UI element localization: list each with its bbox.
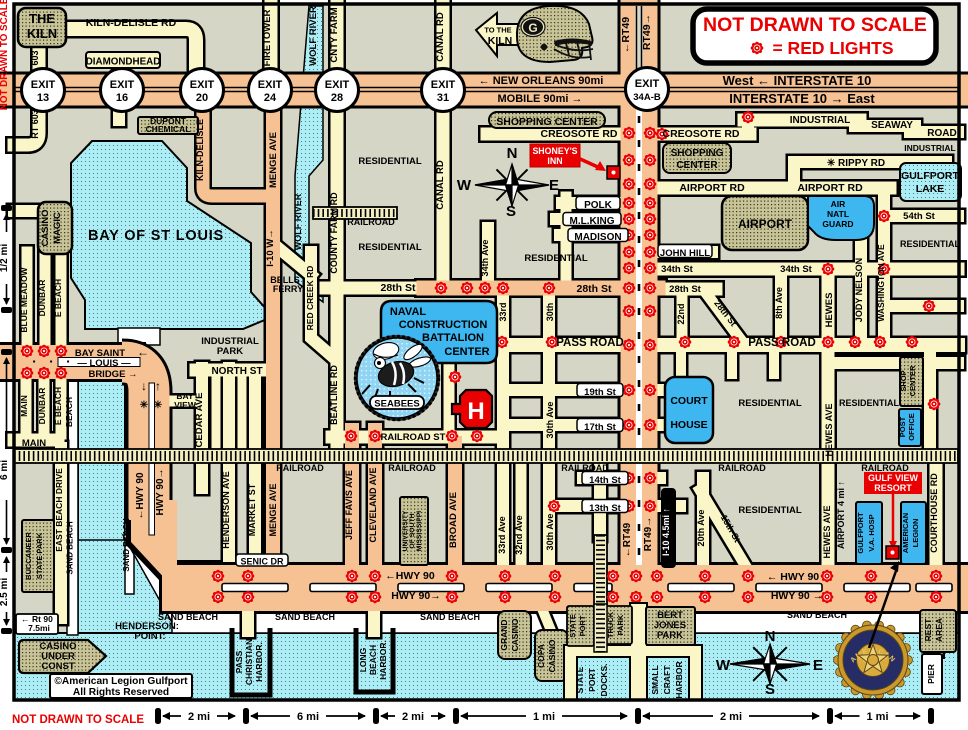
svg-text:MOBILE 90mi →: MOBILE 90mi → xyxy=(498,93,583,105)
svg-text:CHEMICAL: CHEMICAL xyxy=(146,124,191,134)
svg-text:HWY 90 →: HWY 90 → xyxy=(771,590,823,602)
svg-text:AIRPORT RD: AIRPORT RD xyxy=(679,182,745,194)
svg-text:INDUSTRIAL: INDUSTRIAL xyxy=(904,143,955,153)
svg-text:CREOSOTE RD: CREOSOTE RD xyxy=(662,128,739,140)
svg-text:AIR: AIR xyxy=(831,199,846,209)
svg-text:LEGION: LEGION xyxy=(911,519,920,548)
svg-text:EAST BEACH DRIVE: EAST BEACH DRIVE xyxy=(54,468,64,552)
svg-text:SAND BEACH: SAND BEACH xyxy=(275,612,335,622)
svg-text:31: 31 xyxy=(437,92,449,104)
svg-text:AIRPORT: AIRPORT xyxy=(738,217,793,231)
svg-text:2 mi: 2 mi xyxy=(720,711,742,723)
svg-text:POLK: POLK xyxy=(584,200,613,211)
svg-text:MAIN: MAIN xyxy=(22,438,46,449)
svg-text:DUNBAR: DUNBAR xyxy=(37,388,47,425)
svg-text:PIER: PIER xyxy=(926,664,936,684)
svg-text:WASHINGTON AVE: WASHINGTON AVE xyxy=(876,244,886,322)
svg-text:CREOSOTE RD: CREOSOTE RD xyxy=(540,128,617,140)
svg-text:©American Legion Gulfport: ©American Legion Gulfport xyxy=(54,676,188,687)
svg-text:SHOP: SHOP xyxy=(899,370,908,391)
svg-text:34th Ave: 34th Ave xyxy=(480,240,490,277)
svg-text:CASINO: CASINO xyxy=(510,618,520,651)
svg-text:32nd Ave: 32nd Ave xyxy=(514,515,524,554)
svg-text:←: ← xyxy=(137,345,149,359)
svg-text:NOT DRAWN TO SCALE: NOT DRAWN TO SCALE xyxy=(0,0,10,110)
svg-text:7.5mi: 7.5mi xyxy=(28,623,50,633)
svg-text:6 mi: 6 mi xyxy=(0,460,10,480)
svg-text:MAIN: MAIN xyxy=(19,395,29,417)
svg-text:RESIDENTIAL: RESIDENTIAL xyxy=(738,398,802,409)
svg-text:SENIC DR: SENIC DR xyxy=(240,557,284,567)
svg-text:MISSISSIPPI: MISSISSIPPI xyxy=(416,511,423,552)
svg-text:28th St: 28th St xyxy=(380,282,416,294)
svg-text:RAILROAD: RAILROAD xyxy=(347,217,395,227)
svg-text:E BEACH: E BEACH xyxy=(53,279,63,317)
svg-text:RT 603: RT 603 xyxy=(30,109,40,139)
svg-text:RAILROAD: RAILROAD xyxy=(718,463,766,473)
svg-text:34A-B: 34A-B xyxy=(633,92,661,103)
svg-text:▪: ▪ xyxy=(50,357,53,366)
svg-text:2 mi: 2 mi xyxy=(402,711,424,723)
svg-text:SEABEES: SEABEES xyxy=(374,399,419,410)
svg-text:← NEW ORLEANS 90mi: ← NEW ORLEANS 90mi xyxy=(479,75,604,87)
svg-text:PARK: PARK xyxy=(657,630,683,641)
svg-text:BAY OF ST LOUIS: BAY OF ST LOUIS xyxy=(88,228,224,244)
svg-text:30th Ave: 30th Ave xyxy=(545,402,555,439)
svg-text:SHOPPING CENTER: SHOPPING CENTER xyxy=(496,116,598,128)
svg-text:HENDERSON AVE: HENDERSON AVE xyxy=(221,471,231,549)
svg-text:EXIT: EXIT xyxy=(325,79,350,91)
svg-text:24: 24 xyxy=(264,92,277,104)
svg-text:SAND BEACH: SAND BEACH xyxy=(787,610,847,620)
svg-text:INTERSTATE 10 → East: INTERSTATE 10 → East xyxy=(729,91,875,106)
svg-text:HARBOR: HARBOR xyxy=(674,661,684,698)
svg-text:PORT: PORT xyxy=(578,615,587,636)
svg-text:603: 603 xyxy=(30,50,40,65)
svg-text:SMALL: SMALL xyxy=(650,665,660,694)
svg-text:CANAL RD: CANAL RD xyxy=(435,160,446,210)
svg-text:BEATLINE RD: BEATLINE RD xyxy=(329,365,339,425)
svg-text:1/2 mi: 1/2 mi xyxy=(0,244,10,273)
svg-text:G: G xyxy=(528,21,537,35)
svg-text:CLEVELAND AVE: CLEVELAND AVE xyxy=(368,467,378,542)
svg-text:16: 16 xyxy=(116,92,128,104)
svg-text:↑: ↑ xyxy=(155,379,161,393)
svg-text:RESORT: RESORT xyxy=(874,483,912,493)
svg-text:34th St: 34th St xyxy=(780,264,813,275)
svg-text:28: 28 xyxy=(331,92,343,104)
svg-text:RAILROAD: RAILROAD xyxy=(561,463,609,473)
svg-text:S: S xyxy=(765,681,775,698)
svg-text:EXIT: EXIT xyxy=(190,79,215,91)
svg-text:FERRY: FERRY xyxy=(273,284,303,294)
svg-text:FIRETOWER: FIRETOWER xyxy=(262,9,273,66)
svg-text:HEWES AVE: HEWES AVE xyxy=(824,403,834,456)
svg-text:POST: POST xyxy=(898,416,907,437)
svg-text:NORTH ST: NORTH ST xyxy=(211,366,262,377)
svg-text:MENGE AVE: MENGE AVE xyxy=(268,483,278,536)
svg-text:13: 13 xyxy=(37,92,49,104)
svg-text:RAILROAD ST: RAILROAD ST xyxy=(381,432,446,443)
svg-text:BEACH: BEACH xyxy=(368,645,378,675)
svg-text:KILN: KILN xyxy=(488,35,513,47)
svg-text:DUNBAR: DUNBAR xyxy=(37,280,47,317)
svg-text:GULFPORT: GULFPORT xyxy=(856,512,865,554)
svg-text:13th St: 13th St xyxy=(589,503,622,514)
svg-text:SAND BEACH: SAND BEACH xyxy=(122,518,131,572)
svg-text:BEACH: BEACH xyxy=(64,397,74,427)
svg-text:COPA: COPA xyxy=(536,644,546,668)
svg-text:COUNTY FARM RD: COUNTY FARM RD xyxy=(329,192,339,274)
svg-text:HEWES: HEWES xyxy=(824,293,835,328)
svg-text:STATE: STATE xyxy=(568,614,577,637)
svg-text:RT49→: RT49→ xyxy=(641,14,653,50)
svg-text:↓: ↓ xyxy=(141,379,147,393)
svg-text:RESIDENTIAL: RESIDENTIAL xyxy=(358,242,422,253)
svg-text:HARBOR.: HARBOR. xyxy=(254,642,264,682)
svg-text:1 mi: 1 mi xyxy=(866,711,888,723)
svg-text:SAND BEACH: SAND BEACH xyxy=(420,612,480,622)
svg-text:M.L.KING: M.L.KING xyxy=(570,216,615,227)
svg-text:LONG: LONG xyxy=(358,647,368,672)
svg-text:19th St: 19th St xyxy=(584,387,617,398)
svg-text:RESIDENTIAL: RESIDENTIAL xyxy=(358,156,422,167)
svg-text:E: E xyxy=(549,177,559,194)
svg-text:8th Ave: 8th Ave xyxy=(774,287,784,319)
svg-text:MARKET ST: MARKET ST xyxy=(247,483,257,536)
svg-text:WOLF RIVER: WOLF RIVER xyxy=(308,6,319,66)
svg-text:E: E xyxy=(813,657,823,674)
svg-text:NOT DRAWN TO SCALE: NOT DRAWN TO SCALE xyxy=(12,714,144,726)
svg-text:←HWY 90: ←HWY 90 xyxy=(385,570,435,582)
svg-text:PASS ROAD: PASS ROAD xyxy=(748,337,816,349)
svg-text:KILN: KILN xyxy=(27,26,57,41)
svg-text:✳: ✳ xyxy=(154,400,163,411)
svg-text:— LOUIS —: — LOUIS — xyxy=(77,358,131,369)
svg-text:= RED LIGHTS: = RED LIGHTS xyxy=(772,38,893,58)
svg-text:6 mi: 6 mi xyxy=(297,711,319,723)
svg-text:1 mi: 1 mi xyxy=(533,711,555,723)
svg-text:←HWY 90: ←HWY 90 xyxy=(135,472,146,519)
svg-text:RAILROAD: RAILROAD xyxy=(388,463,436,473)
svg-text:STATE PARK: STATE PARK xyxy=(35,532,44,579)
svg-text:GULF VIEW: GULF VIEW xyxy=(868,473,919,483)
svg-text:RESIDENTIAL: RESIDENTIAL xyxy=(839,398,900,408)
svg-text:▪: ▪ xyxy=(33,357,36,366)
svg-text:TO THE: TO THE xyxy=(484,26,511,35)
svg-text:COURT: COURT xyxy=(670,395,708,407)
svg-text:CANAL RD: CANAL RD xyxy=(435,12,446,62)
svg-text:20th Ave: 20th Ave xyxy=(696,510,706,547)
svg-text:RESIDENTIAL: RESIDENTIAL xyxy=(900,239,961,249)
svg-text:UNIVERSITY: UNIVERSITY xyxy=(402,510,409,551)
svg-text:HARBOR.: HARBOR. xyxy=(378,640,388,680)
svg-text:CASINO: CASINO xyxy=(40,210,51,247)
svg-text:BLUE MEADOW: BLUE MEADOW xyxy=(19,266,29,332)
svg-text:PARK: PARK xyxy=(217,346,243,357)
svg-text:I-10 4.5mi ↑: I-10 4.5mi ↑ xyxy=(661,508,671,556)
svg-text:I-10 W→: I-10 W→ xyxy=(265,229,276,266)
svg-text:INDUSTRIAL: INDUSTRIAL xyxy=(790,115,851,126)
svg-text:17th St: 17th St xyxy=(584,422,617,433)
svg-text:STATE: STATE xyxy=(575,666,585,693)
svg-text:2.5 mi: 2.5 mi xyxy=(0,578,10,607)
svg-text:N: N xyxy=(507,145,518,162)
svg-text:RT49→: RT49→ xyxy=(643,517,654,551)
svg-text:CNTY FARM: CNTY FARM xyxy=(329,7,340,62)
svg-text:GRAND: GRAND xyxy=(499,619,509,650)
svg-text:CONST: CONST xyxy=(41,661,74,672)
svg-text:All Rights Reserved: All Rights Reserved xyxy=(73,687,169,698)
svg-text:28th St: 28th St xyxy=(576,283,612,295)
svg-text:RESIDENTIAL: RESIDENTIAL xyxy=(738,505,802,516)
svg-text:SEAWAY: SEAWAY xyxy=(871,120,913,131)
svg-text:CENTER: CENTER xyxy=(444,346,489,358)
svg-text:REST: REST xyxy=(923,618,933,641)
svg-text:SHONEY'S: SHONEY'S xyxy=(532,146,577,156)
svg-text:EXIT: EXIT xyxy=(110,79,135,91)
svg-text:COURTHOUSE RD: COURTHOUSE RD xyxy=(929,473,939,553)
svg-text:✳: ✳ xyxy=(140,400,149,411)
svg-text:KILN-DELISLE: KILN-DELISLE xyxy=(195,119,205,181)
svg-text:V.A. HOSP: V.A. HOSP xyxy=(867,514,876,551)
svg-text:JOHN HILL: JOHN HILL xyxy=(660,248,710,259)
svg-text:CENTER: CENTER xyxy=(676,160,718,171)
svg-text:CHRISTIAN: CHRISTIAN xyxy=(244,639,254,685)
svg-text:THE: THE xyxy=(29,11,55,26)
svg-text:KILN-DELISLE RD: KILN-DELISLE RD xyxy=(86,17,177,29)
svg-text:GULFPORT: GULFPORT xyxy=(901,170,959,182)
svg-text:EXIT: EXIT xyxy=(635,78,660,90)
svg-text:CRAFT: CRAFT xyxy=(662,665,672,695)
svg-text:N: N xyxy=(765,628,776,645)
svg-text:14th St: 14th St xyxy=(589,475,622,486)
svg-text:VIEW: VIEW xyxy=(174,400,197,410)
svg-text:RAILROAD: RAILROAD xyxy=(276,463,324,473)
svg-text:EXIT: EXIT xyxy=(31,79,56,91)
svg-text:MENGE AVE: MENGE AVE xyxy=(268,132,279,188)
svg-text:WOLF RIVER: WOLF RIVER xyxy=(293,193,303,250)
svg-text:OFFICE: OFFICE xyxy=(907,413,916,441)
svg-text:AMERICAN: AMERICAN xyxy=(901,513,910,553)
svg-text:E BEACH: E BEACH xyxy=(53,387,63,425)
svg-text:34th St: 34th St xyxy=(661,264,694,275)
svg-text:←RT49: ←RT49 xyxy=(622,522,633,557)
svg-text:NATL: NATL xyxy=(827,209,849,219)
svg-text:JEFF FAVIS AVE: JEFF FAVIS AVE xyxy=(344,470,354,540)
svg-text:54th St: 54th St xyxy=(903,211,936,222)
svg-text:RED CREEK RD: RED CREEK RD xyxy=(305,266,315,331)
svg-text:33rd Ave: 33rd Ave xyxy=(497,516,507,553)
svg-text:▪: ▪ xyxy=(67,357,70,366)
svg-text:CENTER: CENTER xyxy=(908,365,917,396)
svg-text:CONSTRUCTION: CONSTRUCTION xyxy=(399,319,488,331)
svg-text:POINT:: POINT: xyxy=(134,631,165,642)
svg-text:20: 20 xyxy=(196,92,208,104)
svg-text:DIAMONDHEAD: DIAMONDHEAD xyxy=(86,57,161,68)
svg-text:GUARD: GUARD xyxy=(822,219,853,229)
svg-text:AREA: AREA xyxy=(934,618,944,642)
svg-text:RESIDENTIAL: RESIDENTIAL xyxy=(524,253,588,264)
svg-text:ROAD: ROAD xyxy=(927,128,956,139)
svg-text:CASINO: CASINO xyxy=(547,639,557,672)
svg-text:NAVAL: NAVAL xyxy=(390,306,427,318)
svg-text:AIRPORT 4 mi ↑: AIRPORT 4 mi ↑ xyxy=(836,481,846,549)
svg-text:LAKE: LAKE xyxy=(916,183,945,195)
svg-text:PASS: PASS xyxy=(234,650,244,673)
svg-text:HWY 90→: HWY 90→ xyxy=(155,468,166,515)
svg-text:JODY NELSON: JODY NELSON xyxy=(854,258,864,322)
svg-text:←RT49: ←RT49 xyxy=(620,17,632,53)
svg-text:SHOPPING: SHOPPING xyxy=(671,148,724,159)
svg-text:33rd: 33rd xyxy=(498,302,508,321)
svg-text:EXIT: EXIT xyxy=(431,79,456,91)
svg-text:BRIDGE →: BRIDGE → xyxy=(88,369,137,380)
svg-text:OF SOUTH: OF SOUTH xyxy=(409,513,416,548)
svg-text:HWY 90→: HWY 90→ xyxy=(391,590,440,602)
svg-text:EXIT: EXIT xyxy=(258,79,283,91)
svg-text:30th: 30th xyxy=(545,303,555,322)
svg-text:PASS ROAD: PASS ROAD xyxy=(556,337,624,349)
svg-text:BATTALION: BATTALION xyxy=(422,332,484,344)
svg-text:SAND BEACH: SAND BEACH xyxy=(66,521,75,575)
svg-text:2 mi: 2 mi xyxy=(188,711,210,723)
svg-text:PARK: PARK xyxy=(616,614,625,635)
svg-text:NOT DRAWN TO SCALE: NOT DRAWN TO SCALE xyxy=(703,14,927,36)
svg-text:BROAD AVE: BROAD AVE xyxy=(448,492,459,548)
svg-text:AIRPORT RD: AIRPORT RD xyxy=(797,182,863,194)
svg-text:HEWES AVE: HEWES AVE xyxy=(822,505,832,558)
svg-text:W: W xyxy=(716,657,731,674)
svg-text:22nd: 22nd xyxy=(676,303,686,324)
svg-text:✳ RIPPY RD: ✳ RIPPY RD xyxy=(827,158,885,169)
svg-text:28th St: 28th St xyxy=(669,284,702,295)
svg-text:INN: INN xyxy=(547,156,562,166)
svg-text:HOUSE: HOUSE xyxy=(670,419,707,431)
svg-text:West ← INTERSTATE 10: West ← INTERSTATE 10 xyxy=(723,73,872,88)
svg-text:← HWY 90: ← HWY 90 xyxy=(767,571,819,583)
svg-text:DOCKS.: DOCKS. xyxy=(599,663,609,696)
svg-text:W: W xyxy=(457,177,472,194)
svg-text:BUCCANEER: BUCCANEER xyxy=(24,531,33,580)
svg-text:30th Ave: 30th Ave xyxy=(545,514,555,551)
svg-text:H: H xyxy=(467,398,484,425)
svg-text:PORT: PORT xyxy=(587,667,597,691)
svg-text:MADISON: MADISON xyxy=(574,232,621,243)
svg-text:S: S xyxy=(506,203,516,220)
svg-text:MAGIC: MAGIC xyxy=(52,212,63,244)
svg-text:RAILROAD: RAILROAD xyxy=(861,463,909,473)
